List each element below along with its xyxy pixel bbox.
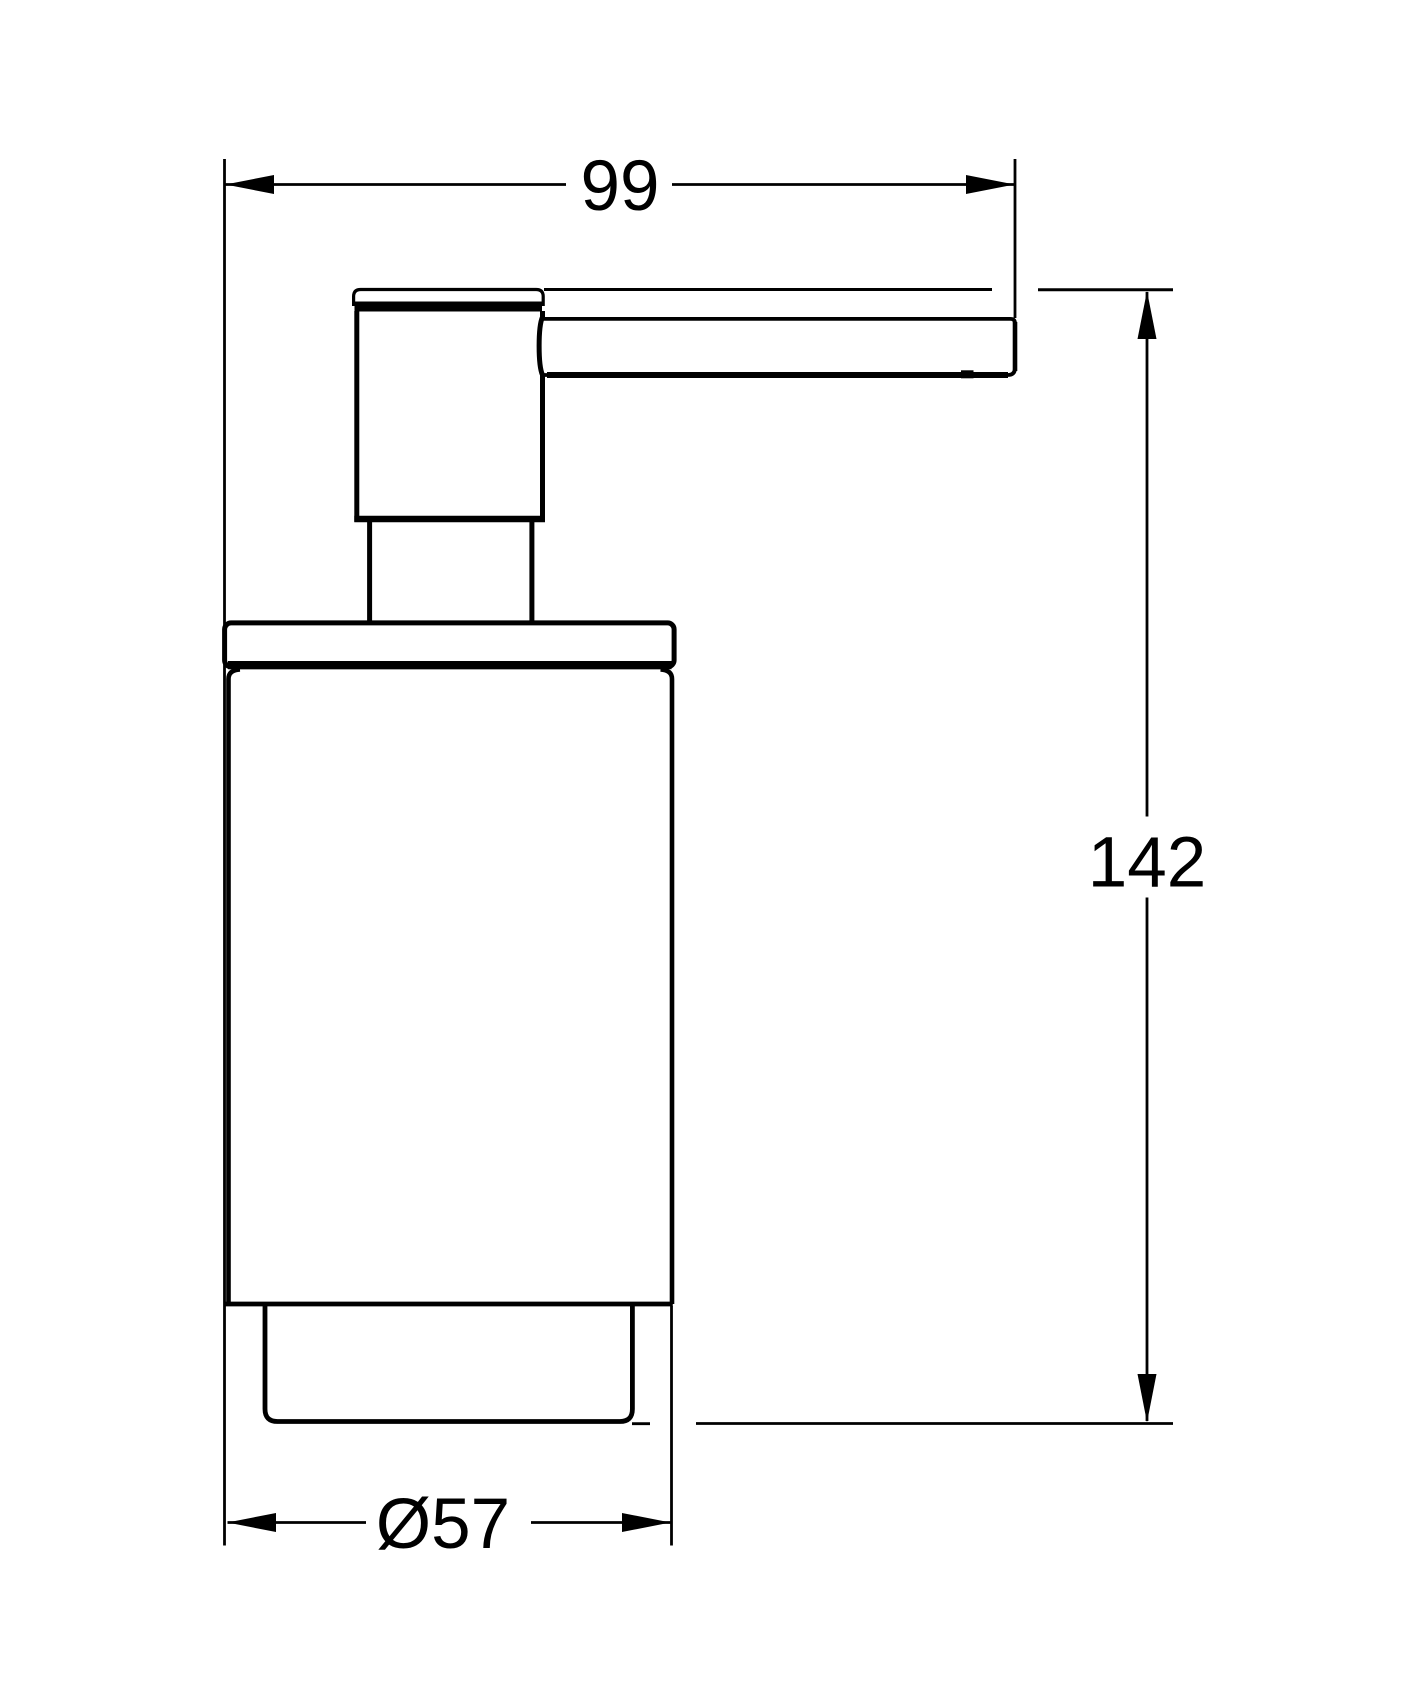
- svg-text:99: 99: [581, 147, 660, 226]
- svg-text:Ø57: Ø57: [376, 1485, 510, 1564]
- svg-text:142: 142: [1088, 824, 1206, 903]
